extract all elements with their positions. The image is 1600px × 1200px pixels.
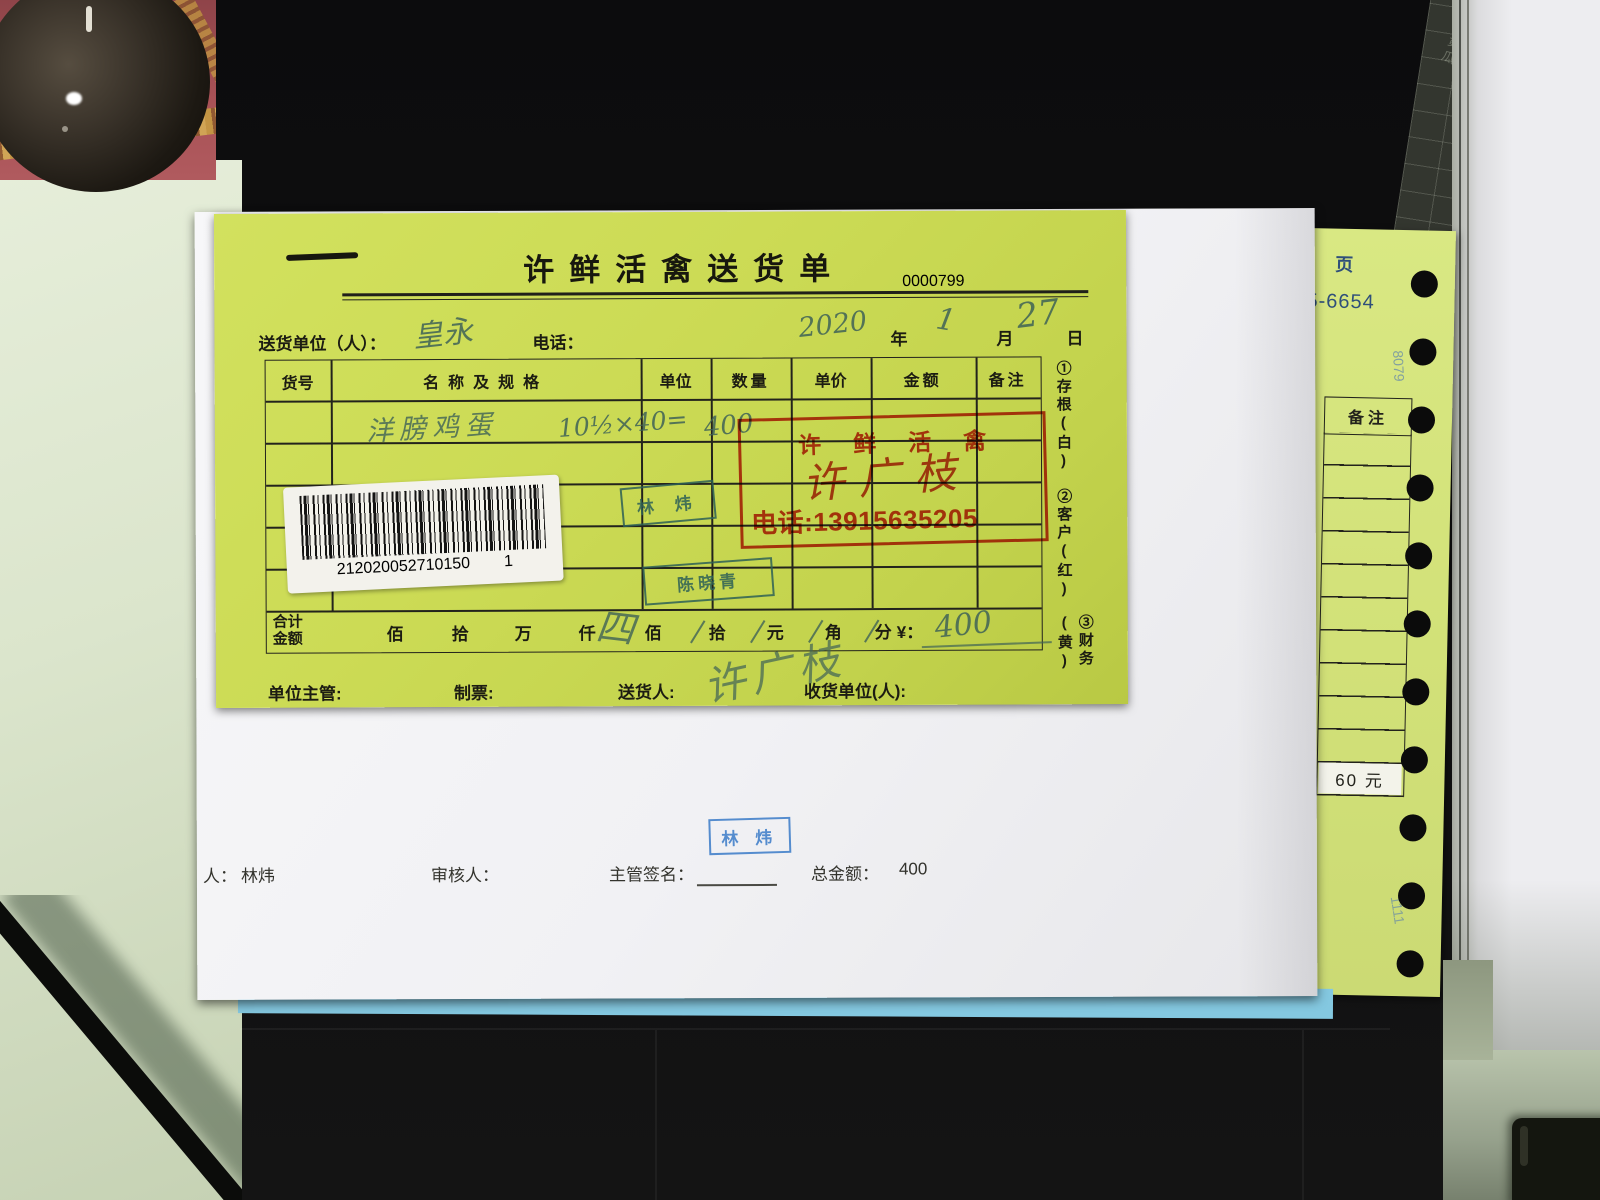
blue-stamp-linwei: 林 炜 (708, 817, 791, 855)
stamp-chen-text: 陈晓青 (676, 567, 741, 597)
total-label: 合计 金额 (273, 614, 303, 649)
currency-label: ¥： (897, 618, 924, 643)
hw-slash (690, 620, 705, 643)
desk-column (1443, 960, 1493, 1060)
item-expr-hw: 10½×40= (557, 404, 689, 443)
sphere-glint (62, 126, 68, 132)
punch-hole (1408, 406, 1436, 434)
header-item-no: 货号 (282, 370, 314, 394)
red-company-stamp: 许鲜活禽 许广枝 电话:13915635205 (737, 411, 1048, 549)
copy-note-finance: ③财务(黄) (1054, 614, 1096, 710)
barcode-suffix: 1 (504, 553, 514, 570)
hw-slash (750, 620, 765, 643)
blue-mark: 8079 (1390, 350, 1408, 382)
phone-fragment: 5-6654 (1306, 290, 1375, 314)
unit-bai: 佰 (387, 620, 404, 645)
red-stamp-phone: 电话:13915635205 (751, 498, 979, 541)
auditor-label: 审核人： (431, 861, 499, 886)
stamp-linwei-text: 林 炜 (636, 488, 701, 519)
date-month-label: 月 (996, 325, 1013, 350)
punch-hole (1396, 950, 1424, 978)
receipt: 许鲜活禽送货单 0000799 送货单位（人）： 皇永 电话： 2020 年 1… (214, 210, 1128, 708)
desk-photo: 黄瓜 冬瓜 丝瓜 页 5-6654 8079 备注 60 元 1111 (0, 0, 1600, 1200)
page-label: 页 (1335, 251, 1354, 277)
price-cell: 60 元 (1318, 762, 1402, 795)
date-month-hw: 1 (934, 301, 959, 339)
barcode-sticker: 2120200527101501 (283, 475, 564, 594)
dark-object-highlight (1520, 1126, 1528, 1166)
barcode-bars (299, 484, 546, 560)
unit-shi: 拾 (452, 620, 469, 645)
serial-number: 0000799 (902, 273, 964, 291)
barcode-number: 212020052710150 (336, 555, 470, 578)
punch-hole (1398, 882, 1426, 910)
header-unit-price: 单价 (815, 367, 847, 391)
pen-dash (286, 252, 358, 261)
header-qty: 数量 (732, 368, 770, 392)
title-rule-thick (342, 290, 1088, 296)
sender-handwritten: 皇永 (410, 306, 474, 356)
phone-label: 电话： (532, 328, 583, 353)
grand-total-value: 400 (899, 859, 927, 879)
keyboard-seam (1302, 1030, 1304, 1200)
date-day-label: 日 (1066, 324, 1083, 349)
total-amount-hw: 400 (933, 605, 994, 646)
punch-hole (1406, 474, 1434, 502)
punch-hole (1409, 338, 1437, 366)
deliverer-label: 送货人: (618, 678, 675, 703)
sign-underline (697, 884, 777, 886)
unit-shi2: 拾 (709, 619, 726, 644)
copy-note-customer: ②客户(红) (1053, 488, 1075, 610)
unit-qian: 仟 (579, 619, 596, 644)
paper-stack (1452, 0, 1600, 1108)
row-line (266, 397, 1041, 402)
sender-label: 送货单位（人）： (258, 329, 386, 355)
keyboard-edge (240, 1028, 1390, 1030)
punch-hole (1403, 610, 1431, 638)
maker-label: 制票: (454, 679, 494, 704)
header-name-spec: 名称及规格 (423, 369, 548, 394)
date-day-hw: 27 (1014, 292, 1062, 337)
manager-label: 单位主管: (268, 679, 342, 704)
sphere-highlight (86, 6, 92, 32)
total-hw-char: 四 (594, 595, 638, 654)
punch-hole (1401, 746, 1429, 774)
punch-hole (1411, 270, 1439, 298)
manager-sign-label: 主管签名： (609, 860, 694, 885)
keyboard-seam (655, 1030, 657, 1200)
sphere-specular (66, 92, 82, 105)
date-year-hw: 2020 (797, 306, 869, 344)
unit-bai2: 佰 (645, 619, 662, 644)
remark-header: 备注 (1348, 404, 1389, 429)
header-amount: 金额 (904, 367, 942, 391)
punch-hole (1399, 814, 1427, 842)
title-rule-thin (342, 296, 1088, 301)
remark-header-box: 备注 (1324, 396, 1413, 436)
total-label-2: 金额 (273, 631, 303, 648)
blue-stamp-text: 林 炜 (721, 823, 778, 850)
punch-hole (1405, 542, 1433, 570)
sheet-crease (1235, 208, 1318, 996)
total-row: 合计 金额 佰 拾 万 仟 佰 拾 元 角 分 ¥： 400 (267, 607, 1042, 652)
person-value: 林炜 (241, 862, 275, 887)
remark-rows (1316, 432, 1412, 797)
grand-total-label: 总金额： (811, 860, 879, 885)
copy-note-stub: ①存根(白) (1053, 360, 1075, 482)
header-unit: 单位 (660, 368, 692, 392)
header-remark: 备注 (989, 366, 1027, 390)
date-year-label: 年 (890, 325, 907, 350)
total-label-1: 合计 (273, 614, 303, 631)
price-value: 60 元 (1335, 766, 1384, 792)
person-label: 人： (203, 862, 237, 887)
punch-hole (1402, 678, 1430, 706)
item-name-hw: 洋膀鸡蛋 (365, 402, 499, 448)
unit-wan: 万 (515, 620, 532, 645)
